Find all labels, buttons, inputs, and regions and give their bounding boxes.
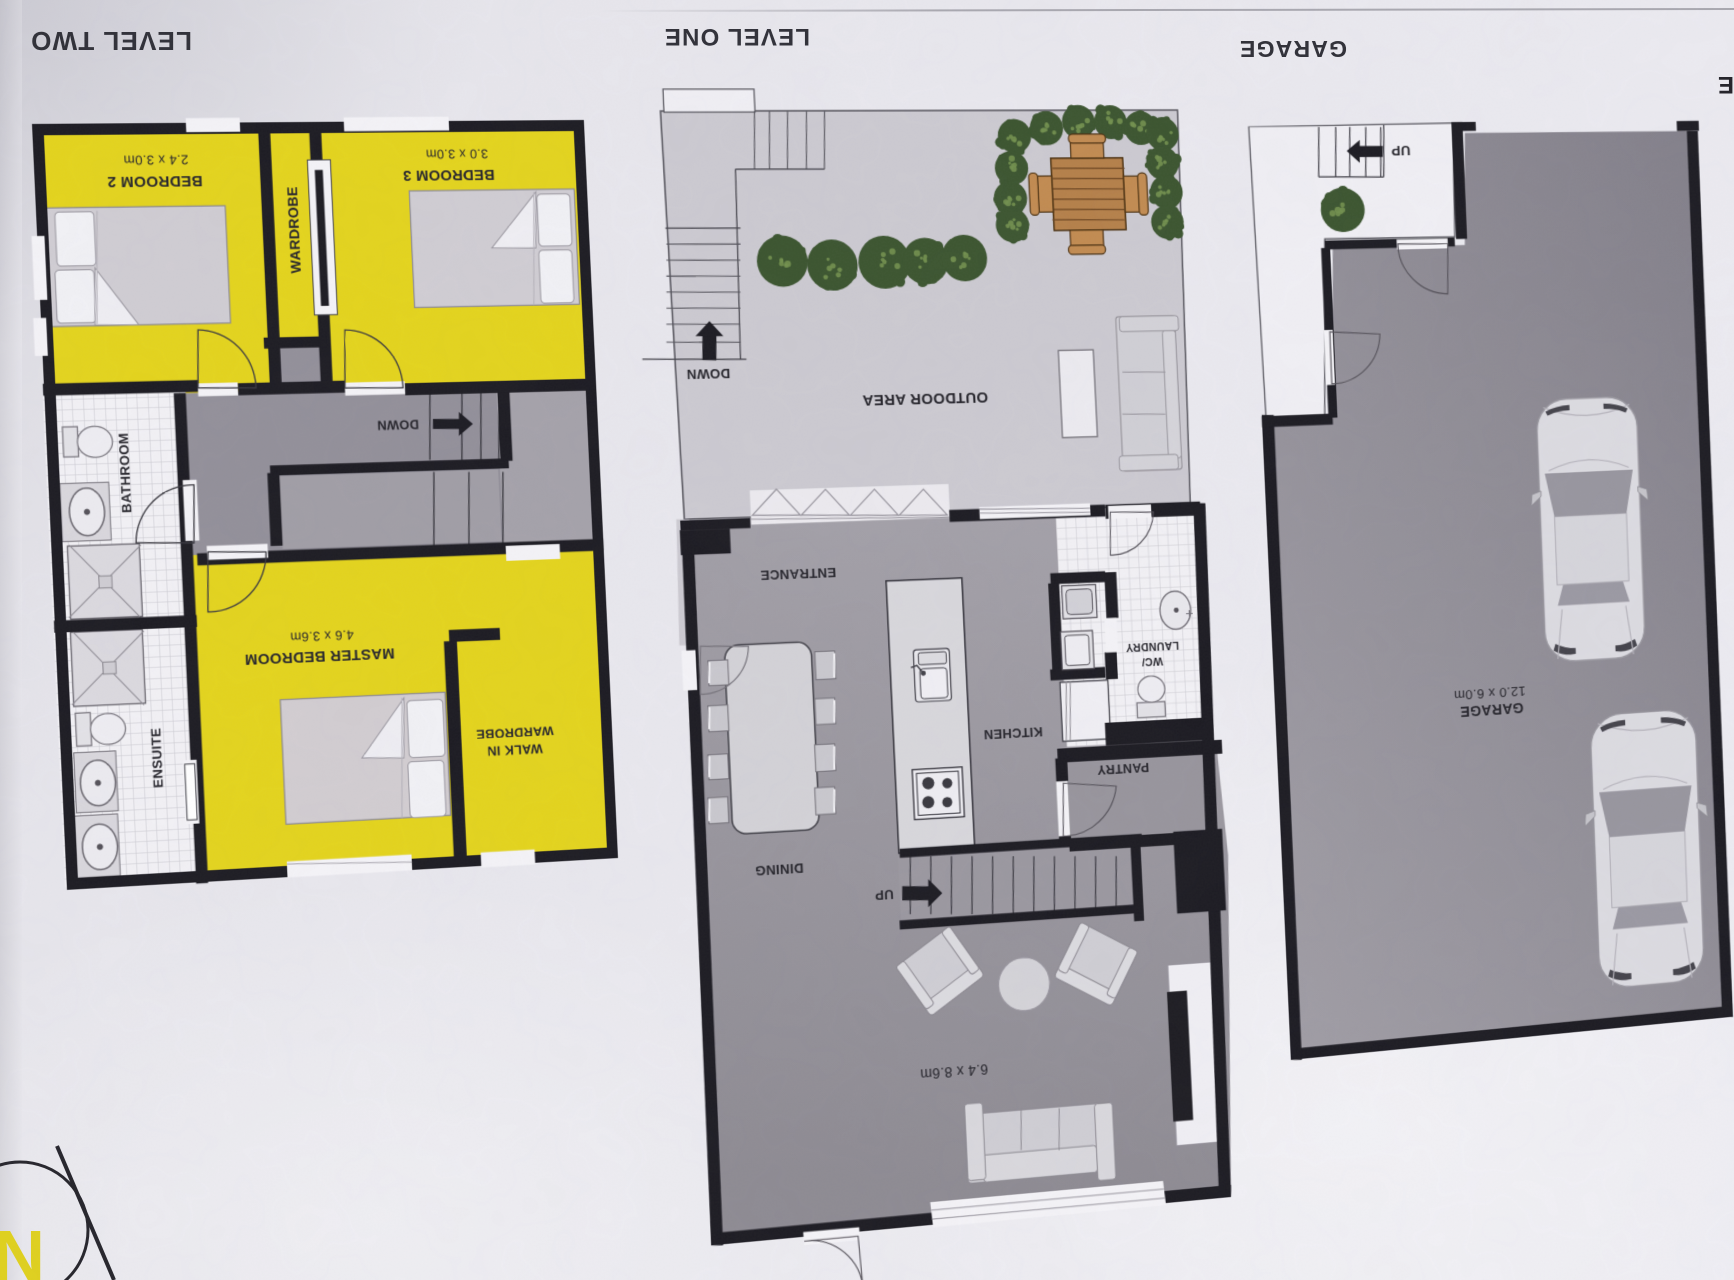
svg-text:N: N xyxy=(0,1215,45,1280)
svg-text:UP: UP xyxy=(1391,142,1411,157)
svg-text:WC/: WC/ xyxy=(1141,655,1163,668)
svg-text:WALK IN: WALK IN xyxy=(487,741,543,759)
svg-text:BEDROOM 3: BEDROOM 3 xyxy=(402,166,495,184)
svg-text:UP: UP xyxy=(874,886,893,902)
svg-text:ENTRANCE: ENTRANCE xyxy=(760,565,837,583)
svg-text:KITCHEN: KITCHEN xyxy=(983,724,1043,742)
svg-text:DOWN: DOWN xyxy=(377,417,420,433)
svg-text:3.0 x 3.0m: 3.0 x 3.0m xyxy=(425,146,488,162)
svg-text:BEDROOM 2: BEDROOM 2 xyxy=(107,172,203,191)
svg-text:PANTRY: PANTRY xyxy=(1097,760,1150,778)
svg-text:4.6 x 3.6m: 4.6 x 3.6m xyxy=(290,627,354,645)
svg-text:LAUNDRY: LAUNDRY xyxy=(1125,639,1179,653)
svg-text:DINING: DINING xyxy=(755,860,804,878)
svg-text:DOWN: DOWN xyxy=(686,366,730,382)
svg-text:OUTDOOR AREA: OUTDOOR AREA xyxy=(862,388,988,408)
svg-text:ENSUITE: ENSUITE xyxy=(148,727,166,788)
svg-text:2.4 x 3.0m: 2.4 x 3.0m xyxy=(123,152,189,168)
